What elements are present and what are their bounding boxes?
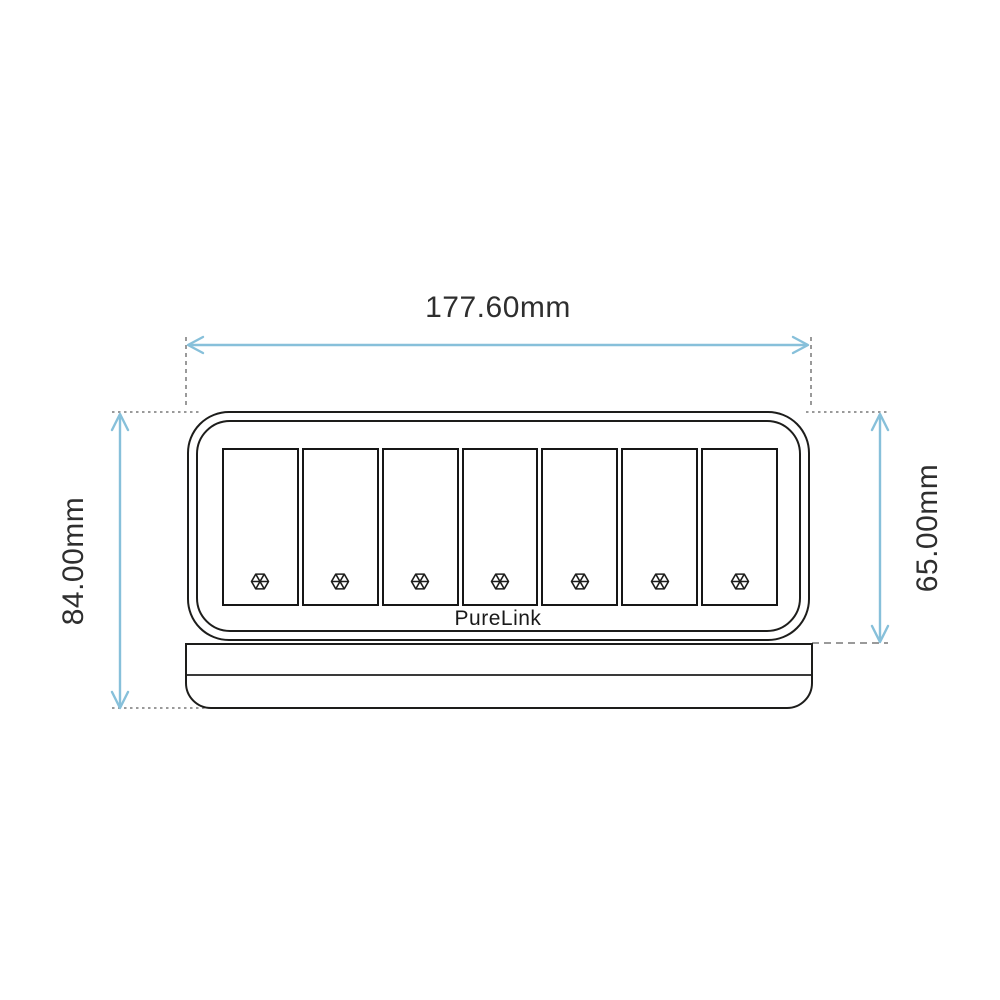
brand-logo-text: PureLink bbox=[348, 607, 648, 631]
hex-screw-icon bbox=[491, 573, 510, 590]
hex-screw-icon bbox=[251, 573, 270, 590]
hex-screw-icon bbox=[570, 573, 589, 590]
overall-height-dimension-label: 84.00mm bbox=[54, 451, 94, 671]
module-slot bbox=[701, 448, 778, 606]
hex-screw-icon bbox=[331, 573, 350, 590]
module-slot bbox=[541, 448, 618, 606]
plate-height-dimension-label: 65.00mm bbox=[908, 418, 948, 638]
mounting-base-divider-line bbox=[187, 674, 811, 676]
overall-height-dimension-arrow bbox=[112, 414, 128, 708]
module-slot-row bbox=[222, 448, 778, 606]
module-slot bbox=[382, 448, 459, 606]
width-dimension-arrow bbox=[188, 337, 808, 353]
hex-screw-icon bbox=[650, 573, 669, 590]
width-dimension-label: 177.60mm bbox=[348, 288, 648, 328]
module-slot bbox=[222, 448, 299, 606]
module-slot bbox=[621, 448, 698, 606]
hex-screw-icon bbox=[730, 573, 749, 590]
module-slot bbox=[462, 448, 539, 606]
technical-drawing-canvas: 177.60mm 84.00mm 65.00mm bbox=[0, 0, 1000, 1000]
hex-screw-icon bbox=[411, 573, 430, 590]
mounting-base-outline bbox=[185, 643, 813, 709]
module-slot bbox=[302, 448, 379, 606]
plate-height-dimension-arrow bbox=[872, 414, 888, 642]
